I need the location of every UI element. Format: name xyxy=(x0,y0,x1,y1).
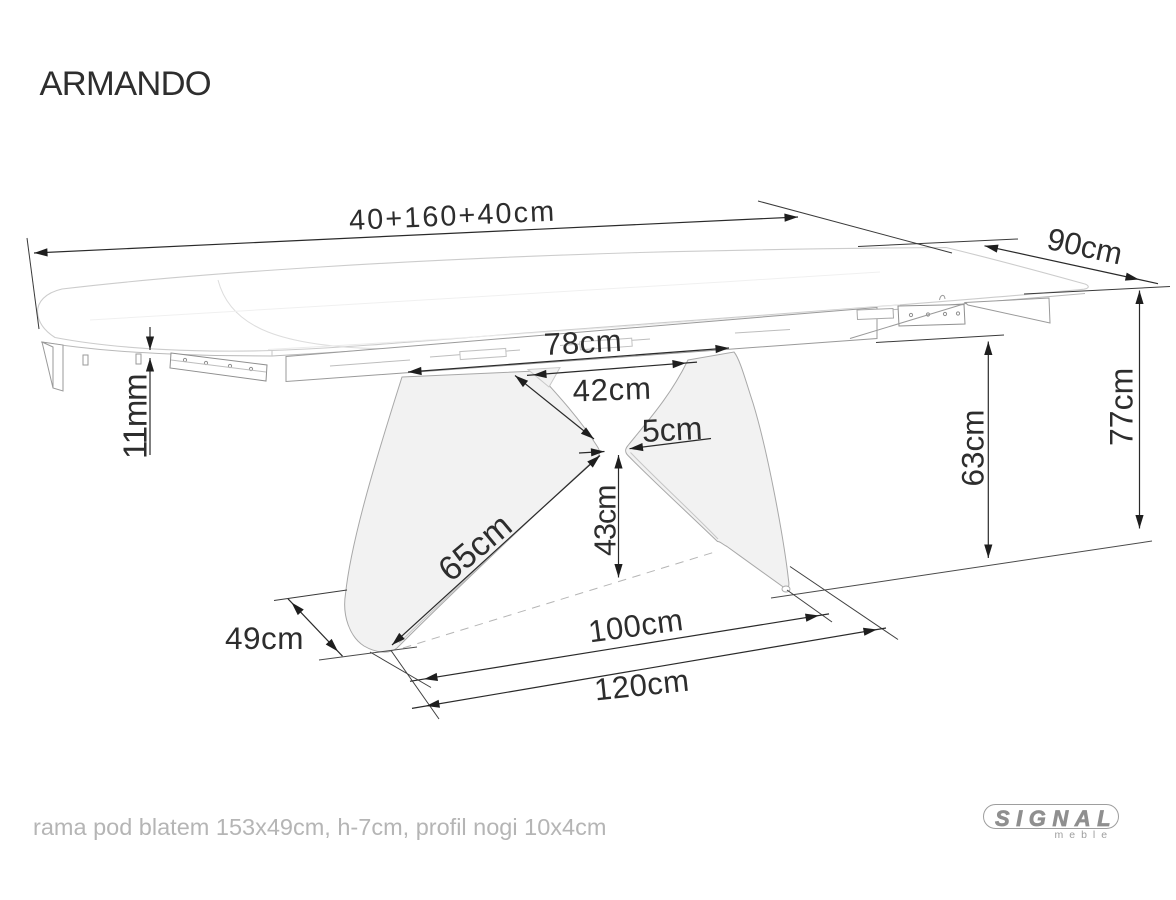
svg-text:63cm: 63cm xyxy=(955,409,991,486)
svg-text:78cm: 78cm xyxy=(543,323,623,362)
svg-text:5cm: 5cm xyxy=(641,410,703,449)
svg-text:43cm: 43cm xyxy=(589,485,623,556)
svg-text:100cm: 100cm xyxy=(586,602,685,649)
svg-text:49cm: 49cm xyxy=(225,620,304,656)
svg-text:11mm: 11mm xyxy=(117,375,154,459)
svg-text:42cm: 42cm xyxy=(572,371,652,409)
svg-text:40+160+40cm: 40+160+40cm xyxy=(348,196,556,237)
svg-text:77cm: 77cm xyxy=(1104,368,1140,446)
svg-text:120cm: 120cm xyxy=(593,663,691,708)
svg-text:90cm: 90cm xyxy=(1044,221,1126,271)
